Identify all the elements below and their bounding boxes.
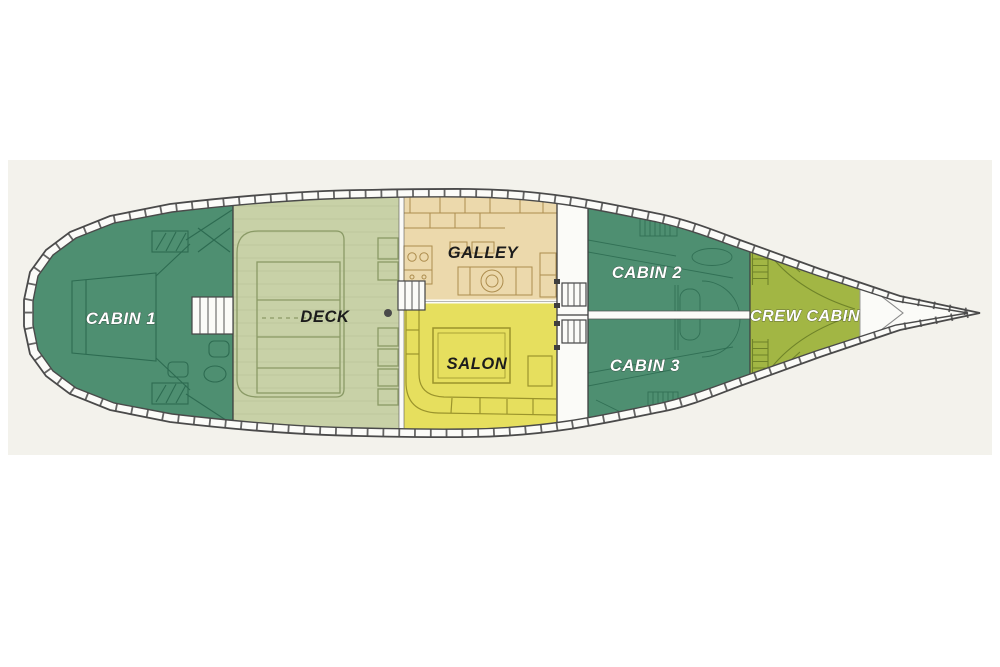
label-cabin3: CABIN 3: [610, 357, 680, 375]
stairway-companionway: [398, 281, 425, 310]
corridor: [557, 186, 588, 436]
mast-mark: [384, 309, 392, 317]
floorplan-svg: CABIN 1 DECK GALLEY SALON CABIN 2 CABIN …: [0, 0, 1000, 667]
label-crew-cabin: CREW CABIN: [750, 308, 860, 325]
stairway-cabin1: [192, 297, 233, 334]
stairway-corridor-upper: [562, 283, 586, 306]
label-cabin1: CABIN 1: [86, 310, 156, 328]
label-cabin2: CABIN 2: [612, 264, 682, 282]
label-galley: GALLEY: [448, 244, 520, 262]
stairway-corridor-lower: [562, 320, 586, 343]
centerline-band: [588, 311, 750, 319]
label-deck: DECK: [300, 308, 350, 326]
boat-floorplan-page: CABIN 1 DECK GALLEY SALON CABIN 2 CABIN …: [0, 0, 1000, 667]
label-salon: SALON: [447, 355, 508, 373]
